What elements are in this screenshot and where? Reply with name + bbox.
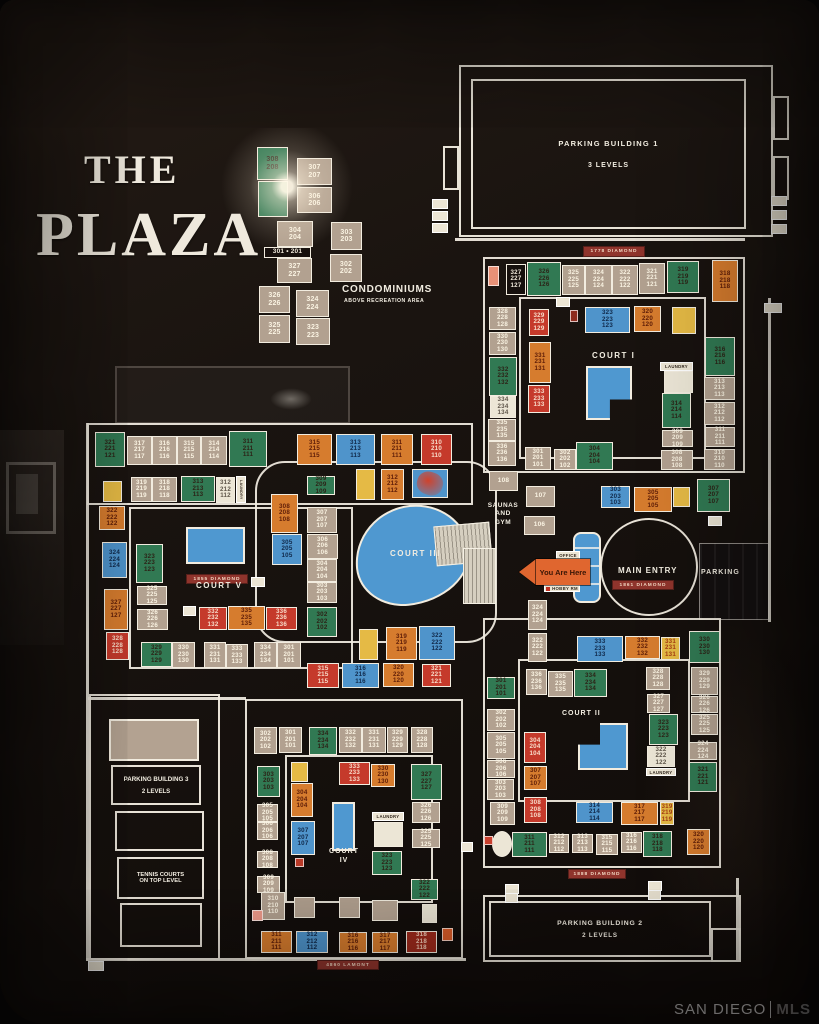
parking-building-3-bay2 xyxy=(120,903,202,947)
parking-building-2: PARKING BUILDING 2 2 LEVELS xyxy=(489,901,711,957)
unit-block: 330 230 130 xyxy=(172,642,195,668)
unit-block xyxy=(374,822,403,847)
unit-block: 315 215 115 xyxy=(177,436,201,465)
gate-tag xyxy=(432,223,448,233)
unit-block: 107 xyxy=(526,486,555,507)
unit-block: 304 204 xyxy=(277,221,313,247)
hobby-rm-tag: HOBBY RM xyxy=(544,585,580,592)
hobby-room-icon xyxy=(546,587,550,591)
unit-block: 306 206 106 xyxy=(257,822,278,840)
unit-block: 303 203 103 xyxy=(257,766,280,797)
unit-block: 318 218 118 xyxy=(406,931,437,953)
unit-block: 320 220 120 xyxy=(687,829,710,855)
unit-block: 309 209 109 xyxy=(257,876,280,893)
unit-block: 326 226 126 xyxy=(412,802,440,823)
unit-block: 322 222 122 xyxy=(99,506,125,530)
unit-block: 324 224 xyxy=(296,290,329,317)
unit-block: 302 202 102 xyxy=(254,727,277,754)
unit-block: 302 202 102 xyxy=(307,607,337,637)
unit-block: 316 216 116 xyxy=(705,337,735,376)
road xyxy=(455,238,745,241)
unit-block: 313 213 113 xyxy=(704,377,735,400)
gate-tag xyxy=(648,890,661,900)
unit-block: 330 230 130 xyxy=(689,631,720,663)
gate-tag xyxy=(505,893,518,903)
parking-building-2-levels: 2 LEVELS xyxy=(582,932,618,939)
unit-block xyxy=(492,831,512,857)
gate-tag xyxy=(708,516,722,526)
unit-block: 307 207 107 xyxy=(291,821,315,855)
unit-block: 327 227 127 xyxy=(411,764,442,800)
unit-block: 323 223 123 xyxy=(372,851,402,875)
unit-block: 323 223 123 xyxy=(585,307,630,333)
visitor-parking-lot xyxy=(699,543,769,620)
map-marker xyxy=(484,836,493,845)
unit-block: 332 232 132 xyxy=(339,727,362,753)
unit-block: 306 206 106 xyxy=(487,760,515,778)
unit-block: 327 227 127 xyxy=(506,264,526,295)
unit-block: 323 223 123 xyxy=(136,544,163,583)
unit-block xyxy=(103,481,122,502)
street-address-banner: 1861 DIAMOND xyxy=(612,580,674,590)
unit-block: 332 232 132 xyxy=(489,357,517,396)
unit-block: 334 234 134 xyxy=(254,642,277,668)
unit-block: 333 233 133 xyxy=(528,385,550,413)
unit-block: 303 203 103 xyxy=(307,582,337,603)
unit-block: 335 235 135 xyxy=(548,671,573,697)
parking-building-3-labels: PARKING BUILDING 3 2 LEVELS xyxy=(113,767,199,803)
unit-block: 324 224 124 xyxy=(585,265,612,295)
unit-block: 314 214 114 xyxy=(201,436,227,465)
unit-block: 316 216 116 xyxy=(621,832,642,853)
parking-label: PARKING xyxy=(701,568,740,577)
unit-block: 316 216 116 xyxy=(152,436,177,465)
unit-block: 318 218 118 xyxy=(643,831,672,857)
unit-block: 308 208 xyxy=(257,147,288,180)
site-map: PARKING BUILDING 1 3 LEVELS PARKING BUIL… xyxy=(0,0,819,1024)
unit-block xyxy=(291,762,308,782)
unit-block: 304 204 104 xyxy=(524,732,546,763)
unit-block: 312 212 112 xyxy=(296,931,328,953)
gate-tag xyxy=(432,199,448,209)
unit-block: 312 212 112 xyxy=(381,469,404,500)
unit-block: 333 233 133 xyxy=(577,636,623,662)
gate-tag xyxy=(461,842,473,852)
unit-block: 310 210 110 xyxy=(261,892,285,920)
unit-block: 331 231 131 xyxy=(204,642,226,668)
you-are-here-arrow-tip xyxy=(519,559,536,585)
unit-block: 334 234 134 xyxy=(574,669,607,697)
parking-building-3-bay xyxy=(115,811,204,851)
watermark-mls: MLS xyxy=(770,1001,811,1018)
unit-block: 330 230 130 xyxy=(489,332,516,355)
court-ii-label: COURT II xyxy=(562,709,601,718)
main-entry-label: MAIN ENTRY xyxy=(618,566,677,576)
unit-block xyxy=(359,629,378,660)
unit-block: 333 233 133 xyxy=(226,644,248,668)
unit-block: 323 223 xyxy=(296,318,330,345)
map-marker xyxy=(488,266,499,286)
gate-tag xyxy=(183,606,196,616)
recreation-deck xyxy=(463,548,496,604)
road xyxy=(736,878,739,962)
paint-damage xyxy=(414,469,446,499)
unit-block: 328 228 128 xyxy=(646,667,670,690)
laundry-tag: LAUNDRY xyxy=(236,476,246,503)
unit-block xyxy=(673,487,690,507)
unit-block: 305 205 105 xyxy=(634,487,672,512)
unit-block xyxy=(664,371,693,393)
unit-block: 301 201 101 xyxy=(487,677,515,699)
unit-block: 322 222 122 xyxy=(612,265,638,295)
unit-block: 301 201 101 xyxy=(525,447,551,470)
laundry-tag: LAUNDRY xyxy=(660,362,693,371)
unit-block: 301 201 101 xyxy=(277,642,301,668)
unit-block: 321 221 121 xyxy=(689,762,717,792)
unit-block: 316 216 116 xyxy=(339,932,367,953)
unit-block: 324 224 124 xyxy=(102,542,127,578)
unit-block: 308 208 108 xyxy=(257,851,278,868)
unit-block: 312 212 112 xyxy=(704,402,735,425)
unit-block: 329 229 129 xyxy=(529,309,549,336)
gate-tag xyxy=(556,297,570,307)
road xyxy=(768,298,771,622)
road xyxy=(86,423,89,961)
unit-block: 323 223 123 xyxy=(649,714,678,745)
road xyxy=(86,958,466,961)
tennis-courts-label: TENNIS COURTS ON TOP LEVEL xyxy=(119,859,202,897)
unit-block: 322 222 122 xyxy=(647,746,675,767)
parking-building-1-title: PARKING BUILDING 1 xyxy=(558,139,658,148)
unit-block: 326 226 126 xyxy=(137,609,168,630)
unit-block: 311 211 111 xyxy=(512,832,547,857)
unit-block: 106 xyxy=(524,516,555,535)
unit-block xyxy=(339,897,360,918)
unit-block: 302 202 102 xyxy=(554,449,576,470)
map-marker xyxy=(442,928,453,941)
unit-block: 311 211 111 xyxy=(381,434,413,465)
unit-block xyxy=(422,904,437,923)
watermark-left: SAN DIEGO xyxy=(674,1001,766,1018)
unit-block: 319 219 119 xyxy=(660,802,674,825)
parking-building-3-levels: 2 LEVELS xyxy=(142,789,170,795)
unit-block xyxy=(372,900,398,921)
unit-block: 322 222 122 xyxy=(528,633,547,662)
unit-block: 318 218 118 xyxy=(712,260,738,302)
unit-block: 309 209 109 xyxy=(307,476,335,495)
unit-block: 311 211 111 xyxy=(229,431,267,467)
unit-block: 311 211 111 xyxy=(705,427,735,447)
unit-block: 308 208 108 xyxy=(271,494,298,533)
unit-block: 327 227 127 xyxy=(647,694,670,713)
unit-block: 325 225 xyxy=(259,315,290,343)
unit-block: 307 207 107 xyxy=(697,479,730,512)
unit-block: 317 217 117 xyxy=(621,802,658,825)
unit-block: 322 222 122 xyxy=(419,626,455,660)
unit-block: 317 217 117 xyxy=(372,932,398,953)
unit-block: 332 232 132 xyxy=(625,636,660,659)
unit-block: 334 234 134 xyxy=(309,727,337,755)
pool-rect xyxy=(186,527,245,564)
parking-building-1-labels: PARKING BUILDING 1 3 LEVELS xyxy=(473,81,744,227)
unit-block: 301 201 101 xyxy=(279,727,302,753)
pool-rect xyxy=(332,802,355,851)
unit-block: 311 211 111 xyxy=(261,931,292,953)
unit-block: 309 209 109 xyxy=(662,430,693,447)
laundry-tag: LAUNDRY xyxy=(646,768,676,776)
court-i-label: COURT I xyxy=(592,351,635,361)
unit-block: 315 215 115 xyxy=(307,663,339,688)
parking-building-1-notch-right1 xyxy=(773,96,789,140)
unit-block: 310 210 110 xyxy=(704,449,735,470)
parking-building-1: PARKING BUILDING 1 3 LEVELS xyxy=(471,79,746,229)
unit-block: 330 230 130 xyxy=(371,764,395,787)
street-address-banner: 4860 LAMONT xyxy=(317,960,379,970)
street-address-banner: 1888 DIAMOND xyxy=(568,869,626,879)
unit-block: 312 212 112 xyxy=(216,477,235,503)
you-are-here-arrow: You Are Here xyxy=(536,559,590,585)
unit-block: 329 229 129 xyxy=(387,727,408,753)
unit-block: 325 225 125 xyxy=(412,829,440,848)
unit-block xyxy=(672,307,696,334)
unit-block: 334 234 134 xyxy=(490,396,516,418)
unit-block: 317 217 117 xyxy=(127,436,152,465)
unit-block: 313 213 113 xyxy=(572,834,593,853)
unit-block: 320 220 120 xyxy=(383,663,414,687)
unit-block: 331 231 131 xyxy=(529,342,551,383)
unit-block: 326 226 126 xyxy=(527,262,561,296)
unit-block: 108 xyxy=(489,471,518,491)
unit-block xyxy=(258,181,288,217)
unit-block: 315 215 115 xyxy=(297,434,332,465)
unit-block: 313 213 113 xyxy=(181,476,215,502)
court-label: COURT IV xyxy=(322,847,366,865)
unit-block: 320 220 120 xyxy=(634,306,661,332)
gate-tag xyxy=(764,303,782,313)
gate-tag xyxy=(88,961,104,971)
unit-block: 319 219 119 xyxy=(131,477,152,502)
unit-block: 333 233 133 xyxy=(339,762,370,785)
unit-block: 316 216 116 xyxy=(342,663,379,688)
unit-block: 307 207 107 xyxy=(307,507,337,533)
road xyxy=(88,697,246,700)
map-marker xyxy=(570,310,578,322)
unit-block: 319 219 119 xyxy=(667,261,699,293)
unit-block: 310 210 110 xyxy=(421,434,452,465)
unit-block: 327 227 xyxy=(277,258,312,283)
unit-block: 312 212 112 xyxy=(549,834,569,853)
unit-block: 321 221 121 xyxy=(422,664,451,687)
parking-building-1-notch-left xyxy=(443,146,459,190)
tennis-courts: TENNIS COURTS ON TOP LEVEL xyxy=(117,857,204,899)
unit-block: 303 203 103 xyxy=(487,779,514,800)
unit-block: 335 235 135 xyxy=(228,606,265,630)
parking-building-3: PARKING BUILDING 3 2 LEVELS xyxy=(111,765,201,805)
unit-block: 325 225 125 xyxy=(137,586,167,605)
directory-sign: THE PLAZA CONDOMINIUMS ABOVE RECREATION … xyxy=(0,0,819,1024)
unit-block: 304 204 104 xyxy=(291,783,313,817)
unit-block: 325 225 125 xyxy=(562,265,585,295)
street-address-banner: 1778 DIAMOND xyxy=(583,246,645,257)
unit-block: 328 228 128 xyxy=(106,632,129,660)
unit-block: 336 236 136 xyxy=(488,441,516,466)
unit-block: 331 231 131 xyxy=(661,637,680,660)
unit-block: 306 206 106 xyxy=(307,534,338,559)
parking-building-3-title: PARKING BUILDING 3 xyxy=(124,776,189,783)
unit-block: 305 205 105 xyxy=(487,732,515,759)
unit-block: 326 226 126 xyxy=(691,696,718,713)
saunas-label: SAUNAS AND GYM xyxy=(484,502,522,527)
watermark: SAN DIEGOMLS xyxy=(674,1001,811,1018)
unit-block: 328 228 128 xyxy=(489,307,516,330)
unit-block: 301 • 201 xyxy=(264,247,311,258)
unit-block xyxy=(412,469,448,498)
unit-block: 307 207 xyxy=(297,158,332,185)
unit-block: 321 221 121 xyxy=(639,263,665,294)
unit-block: 319 219 119 xyxy=(386,627,417,660)
unit-block: 325 225 125 xyxy=(691,714,718,735)
map-marker xyxy=(252,910,263,921)
unit-block xyxy=(356,469,375,500)
unit-block: 336 236 136 xyxy=(266,607,297,630)
unit-block: 326 226 xyxy=(259,286,290,313)
unit-block: 331 231 131 xyxy=(362,727,386,753)
unit-block: 307 207 107 xyxy=(524,766,547,790)
parking-building-2-title: PARKING BUILDING 2 xyxy=(557,920,643,927)
unit-block: 324 224 124 xyxy=(689,742,717,760)
unit-block: 318 218 118 xyxy=(152,477,177,502)
unit-block: 324 224 124 xyxy=(528,600,547,630)
unit-block: 309 209 109 xyxy=(490,802,515,825)
gate-tag xyxy=(771,210,787,220)
unit-block: 304 204 104 xyxy=(307,559,337,582)
gate-tag xyxy=(432,211,448,221)
parking-building-2-labels: PARKING BUILDING 2 2 LEVELS xyxy=(491,903,709,955)
unit-block: 313 213 113 xyxy=(336,434,375,465)
unit-block: 328 228 128 xyxy=(411,727,433,753)
unit-block: 335 235 135 xyxy=(488,419,516,441)
unit-block: 303 203 xyxy=(331,222,362,250)
unit-block: 321 221 121 xyxy=(95,432,125,467)
unit-block: 305 205 105 xyxy=(272,534,302,565)
parking-building-3-roof xyxy=(109,719,199,761)
map-marker xyxy=(295,858,304,867)
unit-block: 314 214 114 xyxy=(576,802,613,823)
parking-building-1-notch-right2 xyxy=(773,156,789,200)
unit-block: 308 208 108 xyxy=(661,450,693,470)
court-iii-label: COURT III xyxy=(390,549,441,559)
parking-building-1-levels: 3 LEVELS xyxy=(588,162,629,169)
gate-tag xyxy=(771,224,787,234)
sign-photo: THE PLAZA CONDOMINIUMS ABOVE RECREATION … xyxy=(0,0,819,1024)
gate-tag xyxy=(771,196,787,206)
gate-tag xyxy=(251,577,265,587)
unit-block: 329 229 129 xyxy=(141,642,172,667)
laundry-tag: LAUNDRY xyxy=(372,812,404,821)
unit-block: 336 236 136 xyxy=(526,669,547,695)
unit-block: 304 204 104 xyxy=(576,442,613,470)
unit-block: 314 214 114 xyxy=(662,393,691,428)
court-v-label: COURT V xyxy=(196,581,243,591)
unit-block xyxy=(294,897,315,918)
unit-block: 329 229 129 xyxy=(691,667,718,695)
unit-block: 322 222 122 xyxy=(411,879,438,900)
unit-block: 308 208 108 xyxy=(524,797,547,823)
unit-block: 327 227 127 xyxy=(104,589,128,630)
unit-block: 303 203 103 xyxy=(601,486,630,508)
unit-block: 302 202 102 xyxy=(487,709,515,731)
unit-block: 302 202 xyxy=(330,254,362,282)
unit-block: 315 215 115 xyxy=(596,834,618,855)
unit-block: 306 206 xyxy=(297,187,332,213)
unit-block: 332 232 132 xyxy=(199,607,227,630)
